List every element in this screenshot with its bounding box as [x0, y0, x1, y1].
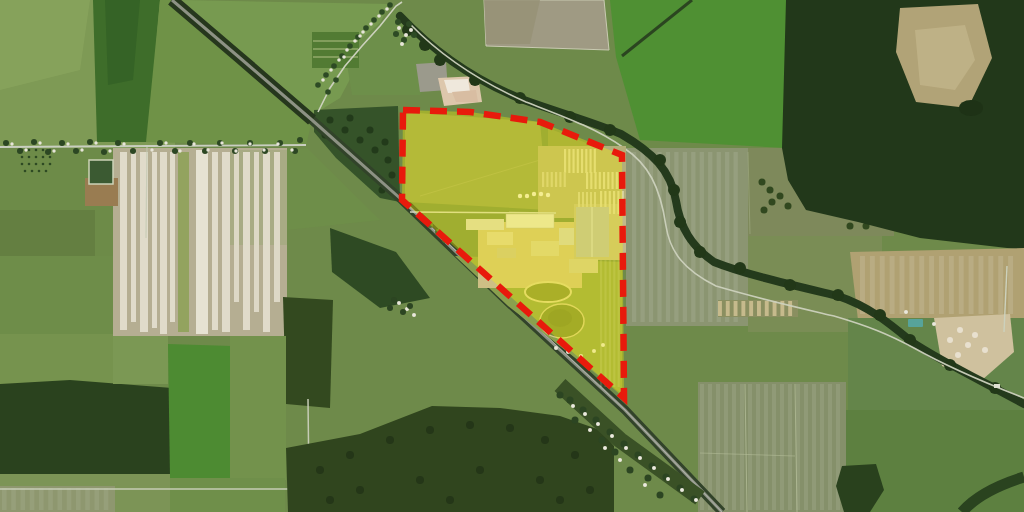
- plow-strip-14: [274, 152, 280, 302]
- river-bridge-structure: [994, 384, 1000, 388]
- teal-pond: [908, 319, 923, 327]
- map-viewport: [0, 0, 1024, 512]
- scrub-small: [283, 297, 333, 408]
- plow-strip-8: [212, 152, 218, 330]
- field-bl-1: [230, 336, 286, 480]
- plow-strip-1: [120, 152, 127, 330]
- field-left-mid1: [0, 256, 113, 334]
- plow-strip-7: [196, 150, 208, 334]
- field-left-lower: [0, 210, 95, 256]
- field-ne-tan: [850, 248, 1024, 320]
- field-bright-left: [168, 344, 232, 480]
- plow-strip-11: [243, 152, 250, 330]
- field-ne-bright: [610, 0, 788, 148]
- satellite-map: [0, 0, 1024, 512]
- plow-strip-9: [222, 152, 230, 332]
- forest-band-left: [0, 380, 172, 482]
- plow-strip-4: [152, 152, 157, 328]
- field-bl-2: [113, 336, 168, 384]
- field-bottom-2: [170, 478, 285, 512]
- plow-strip-2: [131, 152, 136, 322]
- plow-strip-6: [170, 152, 175, 322]
- sandpit-pink: [452, 90, 478, 102]
- clearing-pond: [959, 100, 983, 116]
- plow-strip-12: [254, 152, 259, 312]
- plow-strip-green: [178, 152, 189, 332]
- farm-pond: [89, 160, 113, 184]
- plow-strip-5: [160, 152, 167, 334]
- plow-strip-13: [263, 152, 270, 332]
- plow-strip-10: [234, 152, 239, 302]
- garden-plot-row-1: [313, 40, 358, 42]
